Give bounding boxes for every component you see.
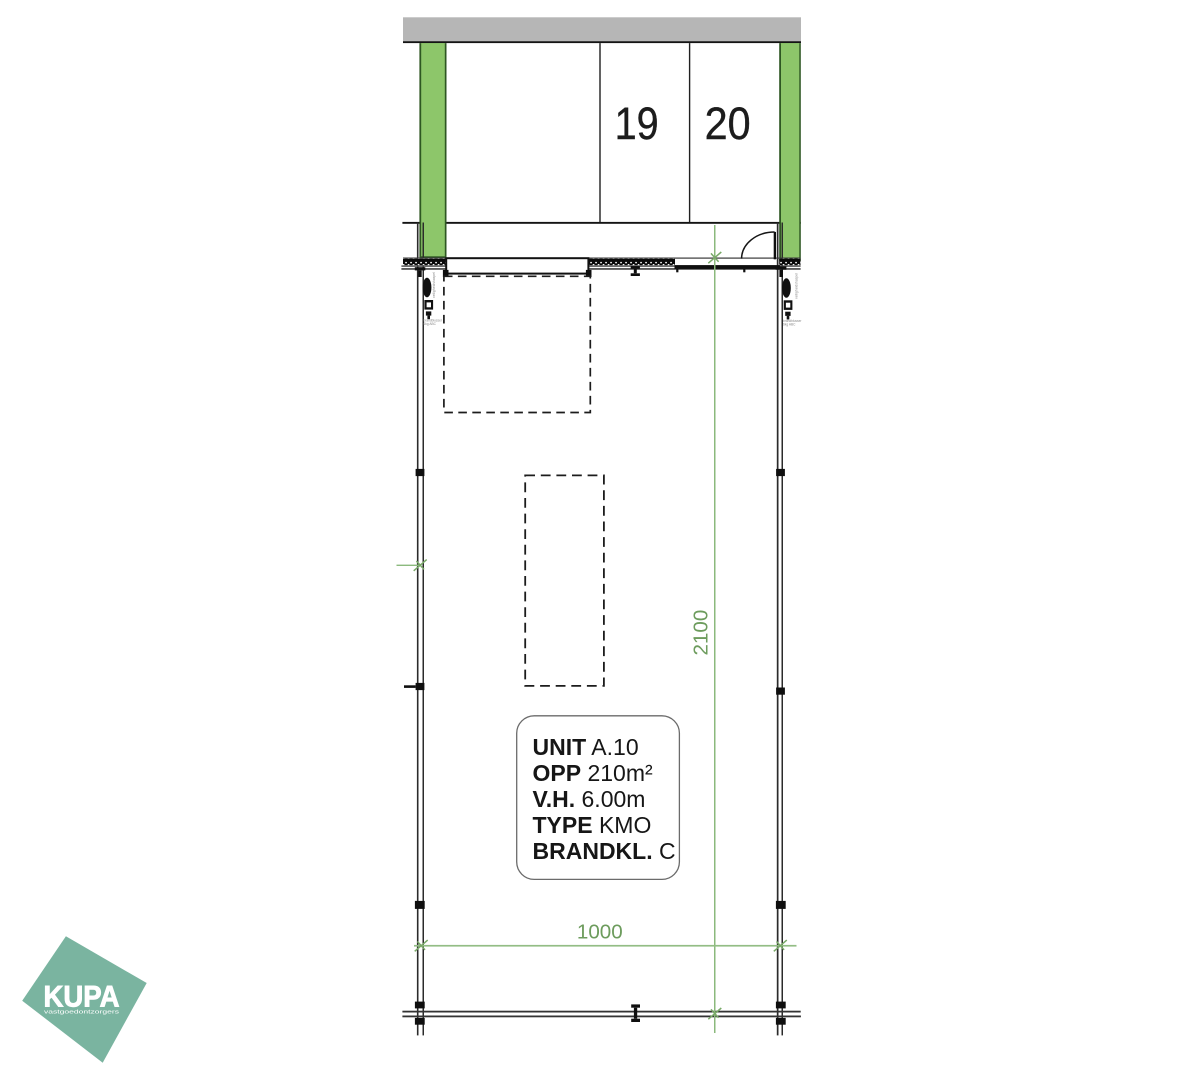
svg-text:20: 20: [705, 98, 751, 149]
svg-text:veiligheidshaspel: veiligheidshaspel: [432, 272, 436, 298]
svg-text:veiligheidshaspel: veiligheidshaspel: [795, 273, 799, 299]
svg-text:KUPA: KUPA: [44, 981, 120, 1014]
svg-text:V.H. 6.00m: V.H. 6.00m: [533, 786, 646, 812]
svg-text:vastgoedontzorgers: vastgoedontzorgers: [44, 1010, 119, 1016]
svg-text:OPP 210m²: OPP 210m²: [533, 760, 654, 786]
svg-text:19: 19: [615, 98, 659, 149]
svg-text:1000: 1000: [577, 921, 623, 944]
svg-text:TYPE KMO: TYPE KMO: [533, 812, 652, 838]
svg-text:6kg ABC: 6kg ABC: [783, 323, 796, 327]
svg-text:6kg ABC: 6kg ABC: [424, 322, 437, 326]
svg-text:2100: 2100: [689, 610, 712, 656]
svg-text:BRANDKL. C: BRANDKL. C: [533, 838, 676, 864]
svg-text:UNIT A.10: UNIT A.10: [533, 734, 639, 760]
